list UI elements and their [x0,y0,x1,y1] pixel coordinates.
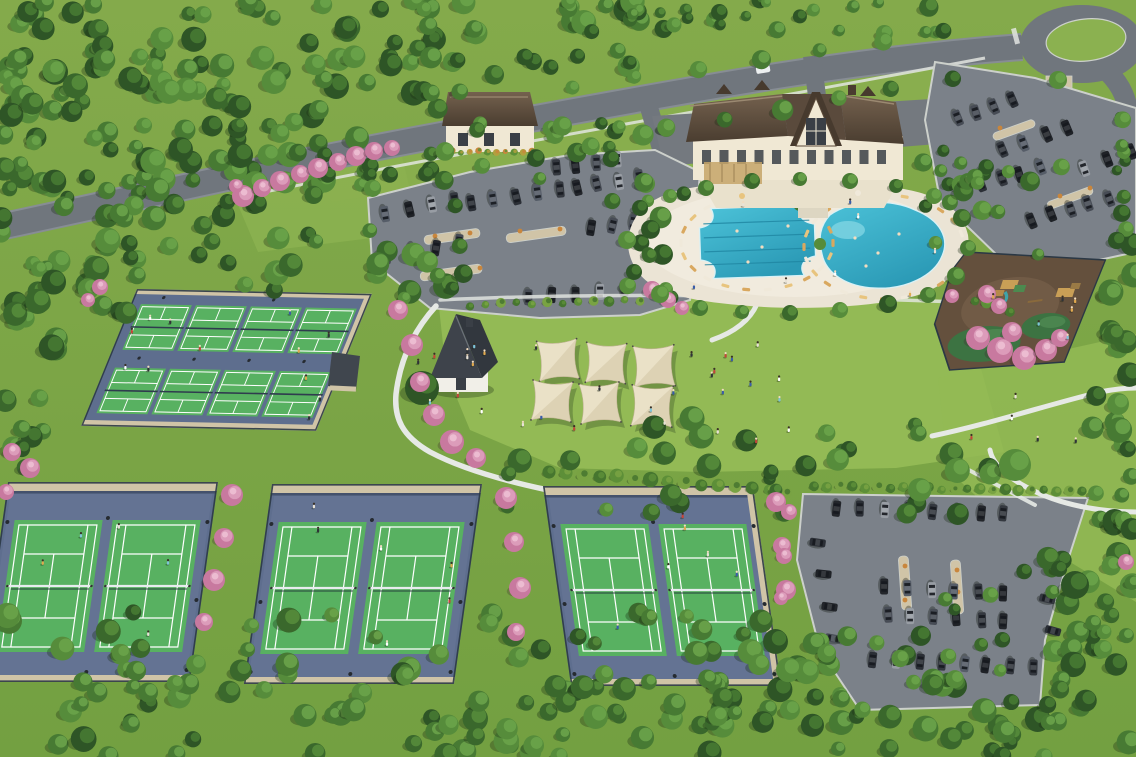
dot [998,126,1003,131]
dot [903,564,908,569]
dot [786,224,789,227]
window [860,150,869,164]
dot [853,236,856,239]
window [807,150,816,164]
dot [518,229,523,234]
dot [903,598,908,603]
pool-house [442,92,538,152]
tennis-enclosure-1 [0,482,218,682]
dot [760,245,763,248]
patio-steps [798,208,828,218]
dot [897,232,900,235]
lounge-chair [802,243,805,251]
dot [478,266,483,271]
aerial-scene [0,0,1136,757]
dot [468,231,473,236]
chimney [848,85,856,95]
leisure-pool [820,202,945,288]
patio-umbrella [739,193,745,199]
shade-sail [584,341,630,389]
dot [1058,194,1063,199]
lounge-chair [679,239,682,247]
window [755,150,764,164]
leisure-pool-water [820,202,945,288]
window [702,150,711,164]
dot [735,229,738,232]
chimney [466,318,473,327]
lounge-chair [831,239,834,247]
dot [1088,186,1093,191]
shade-sail [632,344,679,393]
door [510,133,520,146]
dot [876,251,879,254]
event-lawn [438,294,1004,472]
patio-umbrella [855,190,861,196]
shade-sail [530,379,577,428]
pickleball-shelter [328,352,360,392]
window [825,150,834,164]
door [456,376,466,390]
window [842,150,851,164]
dot [746,260,749,263]
tanning-ledge [831,221,865,239]
dot [864,264,867,267]
dot [558,227,563,232]
window [720,150,729,164]
aerial-scene-stage [0,0,1136,757]
door [458,133,468,146]
window [877,150,886,164]
window [790,150,799,164]
deck-planter [814,238,826,250]
door [484,133,494,146]
window [737,150,746,164]
window [772,150,781,164]
dot [955,568,960,573]
